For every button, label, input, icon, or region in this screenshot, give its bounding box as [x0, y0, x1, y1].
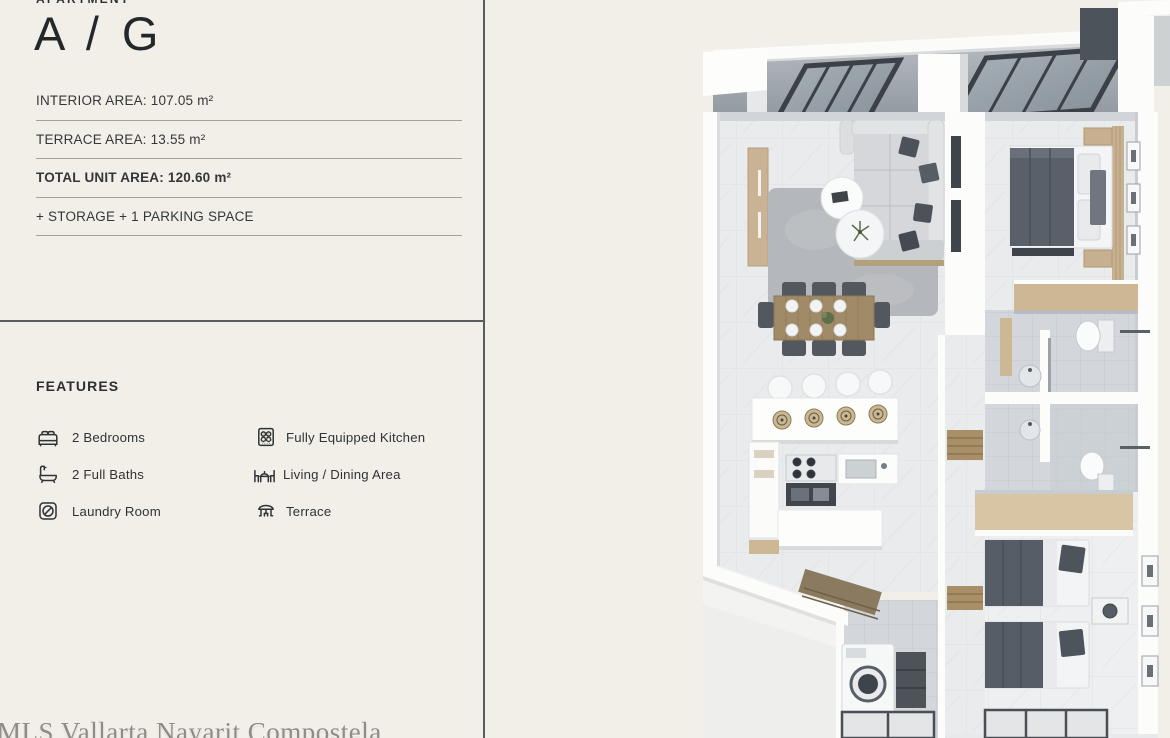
vertical-divider [483, 0, 485, 738]
feature-baths: 2 Full Baths [36, 461, 144, 487]
bed-icon [36, 425, 72, 449]
kitchen [749, 370, 898, 554]
washing-machine-icon [36, 499, 72, 523]
spec-row-interior: INTERIOR AREA: 107.05 m² [36, 82, 462, 121]
feature-living-dining: Living / Dining Area [251, 461, 401, 487]
area-spec-table: INTERIOR AREA: 107.05 m² TERRACE AREA: 1… [36, 82, 462, 236]
feature-laundry: Laundry Room [36, 498, 161, 524]
stove-icon [254, 425, 286, 449]
feature-bedrooms: 2 Bedrooms [36, 424, 145, 450]
laundry-room [842, 644, 934, 738]
feature-label: Fully Equipped Kitchen [286, 430, 425, 445]
floor-plan-render [690, 0, 1170, 738]
feature-label: 2 Full Baths [72, 467, 144, 482]
features-heading: FEATURES [36, 378, 119, 394]
bathtub-icon [36, 462, 72, 486]
feature-terrace: Terrace [254, 498, 331, 524]
feature-label: 2 Bedrooms [72, 430, 145, 445]
page-title: A / G [34, 6, 164, 61]
feature-kitchen: Fully Equipped Kitchen [254, 424, 425, 450]
watermark: MLS Vallarta Nayarit Compostela [0, 717, 382, 738]
feature-label: Terrace [286, 504, 331, 519]
dining-table-icon [251, 462, 283, 486]
umbrella-icon [254, 499, 286, 523]
spec-row-total: TOTAL UNIT AREA: 120.60 m² [36, 159, 462, 198]
spec-row-extras: + STORAGE + 1 PARKING SPACE [36, 198, 462, 237]
horizontal-divider [0, 320, 484, 322]
spec-row-terrace: TERRACE AREA: 13.55 m² [36, 121, 462, 160]
feature-label: Laundry Room [72, 504, 161, 519]
feature-label: Living / Dining Area [283, 467, 401, 482]
brochure-page: APARTMENT A / G INTERIOR AREA: 107.05 m²… [0, 0, 1170, 738]
